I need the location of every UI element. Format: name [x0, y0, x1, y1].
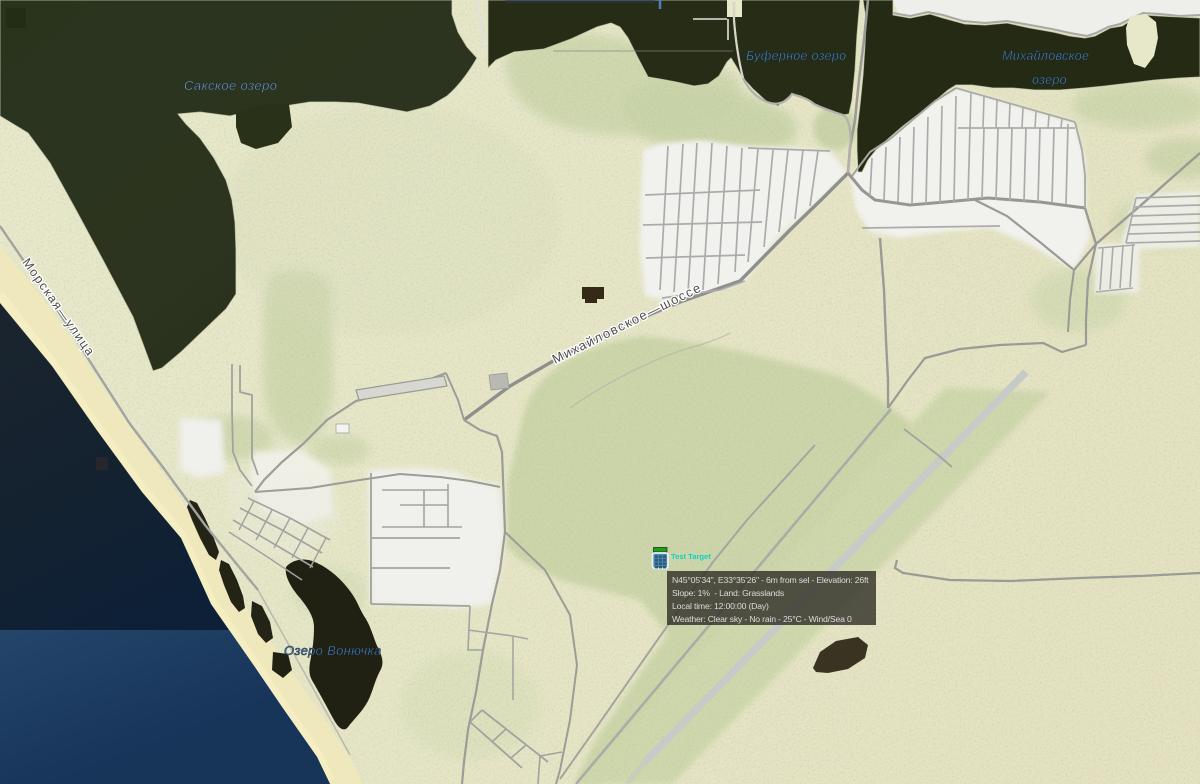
svg-text:N45°05'34", E33°35'26" - 6m fr: N45°05'34", E33°35'26" - 6m from sel - E… — [672, 575, 869, 585]
svg-text:Озеро Вонючка: Озеро Вонючка — [284, 643, 382, 658]
svg-text:Local time: 12:00:00 (Day): Local time: 12:00:00 (Day) — [672, 601, 769, 611]
svg-text:Slope: 1% - Land: Grasslands: Slope: 1% - Land: Grasslands — [672, 588, 785, 598]
svg-text:озеро: озеро — [1032, 73, 1067, 87]
svg-text:Сакское озеро: Сакское озеро — [184, 78, 277, 93]
svg-text:Буферное озеро: Буферное озеро — [746, 49, 846, 63]
svg-text:Test Target: Test Target — [671, 552, 711, 561]
svg-text:Михайловское: Михайловское — [1002, 49, 1089, 63]
svg-text:Weather: Clear sky - No rain -: Weather: Clear sky - No rain - 25°C - Wi… — [672, 614, 852, 624]
